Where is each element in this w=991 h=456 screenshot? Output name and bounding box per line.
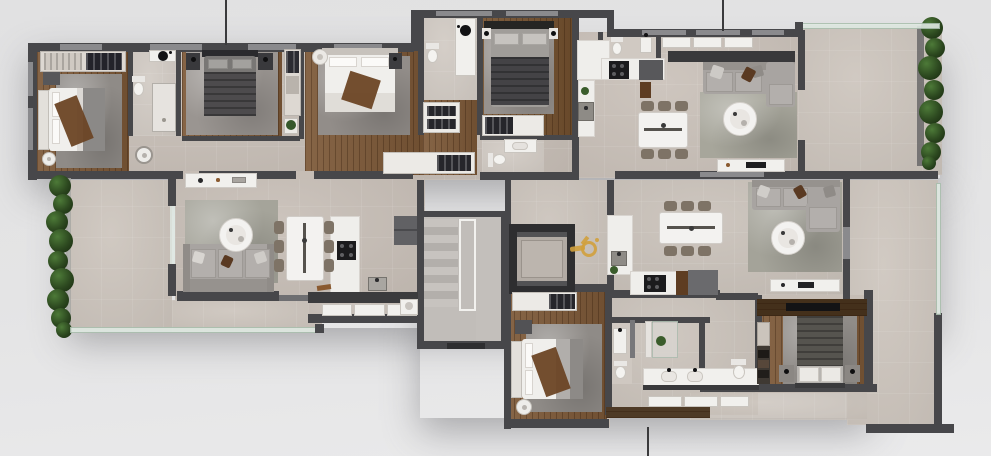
bed-bc-dresser xyxy=(515,320,532,334)
kitchen2-fridge xyxy=(688,270,718,295)
wall-bedroom-b-bottom xyxy=(182,136,300,141)
bath-c-bowl-sink xyxy=(460,25,471,36)
stair-tread xyxy=(424,227,458,235)
faucet xyxy=(457,25,460,28)
bed-bc-blanket-roll xyxy=(570,339,583,399)
bed-c-pillow xyxy=(329,57,357,67)
wardrobe-br-items xyxy=(758,360,769,368)
sofa-ml-back xyxy=(183,279,274,292)
bed-bc-pouf-button xyxy=(522,405,527,410)
leader-line-top-right xyxy=(722,0,724,31)
wall-mid-horizontal xyxy=(615,171,938,179)
stair-tread xyxy=(424,291,458,299)
stair-tread xyxy=(424,235,458,243)
bed-a-dresser xyxy=(43,72,60,85)
glass-railing-right xyxy=(936,183,941,315)
lamp xyxy=(784,369,789,374)
bed-br-pillow xyxy=(821,367,841,382)
stair-tread xyxy=(424,251,458,259)
dining-chair xyxy=(698,246,711,256)
bed-a-pouf-button xyxy=(47,157,51,161)
elevator-rail-top xyxy=(517,232,567,237)
bed-br-headrail xyxy=(795,383,845,388)
bath-d-toilet-bowl xyxy=(493,154,506,165)
bath-a-bowl-sink xyxy=(158,51,168,61)
closet-b-items-2 xyxy=(286,76,299,94)
bed-c-armchair-seat xyxy=(317,54,323,60)
wardrobe-a-clothes-light xyxy=(44,53,82,70)
hall-pouf-button xyxy=(142,153,147,158)
stair-tread xyxy=(424,259,458,267)
wall-stair-left xyxy=(417,180,424,348)
table-decor xyxy=(238,236,244,242)
leader-line-top-left xyxy=(225,0,227,45)
media-device xyxy=(798,282,814,288)
faucet xyxy=(618,328,622,332)
vanity-basin xyxy=(687,371,703,382)
dining-chair xyxy=(658,149,671,159)
kitchen1-drawer xyxy=(322,304,352,316)
wardrobe-br-items xyxy=(758,370,769,378)
stair-tread xyxy=(424,299,458,307)
faucet xyxy=(584,106,588,110)
lamp xyxy=(484,31,489,36)
shower-plant xyxy=(656,336,666,346)
bath-a-shower xyxy=(152,83,176,132)
dining-chair xyxy=(324,240,334,253)
console-ml xyxy=(185,173,257,188)
vanity-drawer xyxy=(684,396,718,407)
bath-a-toilet-bowl xyxy=(133,82,144,96)
wall-living-bottom-low xyxy=(279,295,309,301)
hedge-left xyxy=(50,268,74,292)
wall-divider-bath-b xyxy=(176,48,181,136)
vanity-basin xyxy=(661,371,677,382)
faucet xyxy=(375,278,379,282)
hedge-right xyxy=(924,80,944,100)
bed-br-blanket xyxy=(797,316,843,366)
wardrobe-a-clothes-dark xyxy=(86,53,122,70)
leader-line-bottom xyxy=(647,427,649,456)
wall-bath-left xyxy=(699,320,705,372)
console-decor xyxy=(781,283,785,287)
dining-chair xyxy=(324,259,334,272)
dining-chair xyxy=(675,101,688,111)
stair-tread xyxy=(424,219,458,227)
bed-c-headboard xyxy=(322,48,398,55)
shoe-row xyxy=(427,119,456,129)
bed-b-pillow xyxy=(208,59,228,69)
bed-d-blanket xyxy=(491,57,549,105)
window-mr-right xyxy=(843,227,850,259)
glass-cap xyxy=(315,324,324,333)
elevator-cab xyxy=(521,240,563,278)
hedge-right xyxy=(919,100,943,124)
glass-cap xyxy=(795,22,803,30)
bed-a-headboard xyxy=(38,90,49,150)
dining-chair xyxy=(664,201,677,211)
kitchen3-plant xyxy=(581,87,589,95)
floor-terrace-left xyxy=(70,180,172,331)
sofa-cushion xyxy=(809,207,837,229)
console-decor xyxy=(726,163,730,167)
nightstand xyxy=(389,53,402,69)
wall-divider-a-bath xyxy=(128,48,133,136)
vanity-drawer xyxy=(648,396,682,407)
sofa-cushion xyxy=(769,84,793,105)
wc-top-toilet-bowl xyxy=(612,42,622,55)
wall-terrace-divider-bottom xyxy=(798,140,805,178)
wall-living-bottom xyxy=(177,291,279,301)
kitchen3-wood-cabinet xyxy=(640,82,651,98)
glass-terrace-door xyxy=(170,206,175,264)
stair-tread xyxy=(424,243,458,251)
kitchen3-sink xyxy=(578,102,594,121)
glass-railing-top-right xyxy=(800,23,940,29)
dining-chair xyxy=(681,201,694,211)
window-left-2 xyxy=(28,108,33,150)
window-top-1 xyxy=(60,44,102,50)
kitchen1-fridge-handle xyxy=(394,229,417,231)
bar-counter xyxy=(668,51,795,62)
table-decor xyxy=(689,226,694,231)
wall-living-left-top xyxy=(168,178,176,206)
window-top-8 xyxy=(696,30,740,35)
nightstand xyxy=(258,53,273,70)
bed-br-pillow xyxy=(799,367,819,382)
hedge-right xyxy=(925,38,945,58)
bed-d-pillow xyxy=(494,33,519,45)
kitchen2-plant xyxy=(610,266,618,274)
dining-chair xyxy=(274,259,284,272)
dining-chair xyxy=(681,246,694,256)
dining-chair xyxy=(274,240,284,253)
dining-chair xyxy=(641,101,654,111)
stair-rail xyxy=(459,219,476,311)
window-top-9 xyxy=(752,30,784,35)
bed-b-blanket xyxy=(204,72,256,116)
faucet xyxy=(169,51,172,54)
lamp xyxy=(191,57,196,62)
faucet xyxy=(644,33,648,37)
dining-chair xyxy=(658,101,671,111)
kitchen1-drawer xyxy=(354,304,385,316)
lamp xyxy=(263,57,268,62)
vanity-drawer xyxy=(720,396,749,407)
glass-railing-left xyxy=(70,327,320,333)
kitchen2-wood-cabinet xyxy=(676,271,688,295)
shoe-row xyxy=(427,106,456,116)
table-runner xyxy=(303,223,306,273)
hedge-right xyxy=(925,123,945,143)
hedge-left xyxy=(49,229,73,253)
shoe-row xyxy=(549,294,575,309)
floor-plan-render xyxy=(0,0,991,456)
media-device xyxy=(746,162,766,168)
dining-chair xyxy=(675,149,688,159)
dining-chair xyxy=(641,149,654,159)
laundry-basin xyxy=(405,302,413,310)
table-decor xyxy=(789,239,795,245)
upper-cabinet xyxy=(724,37,753,48)
bed-bc-headboard xyxy=(511,341,522,398)
console-decor xyxy=(198,178,203,183)
wall-wc-right xyxy=(656,32,661,60)
kitchen3-dark-cabinet xyxy=(639,60,663,80)
table-decor xyxy=(741,120,747,126)
wall-bedroom-bc-bottom xyxy=(507,419,609,428)
wall-bath-bottom-wood xyxy=(606,407,710,418)
bath-a-drain xyxy=(162,118,166,122)
window-top-7 xyxy=(642,30,686,35)
dining-chair xyxy=(664,246,677,256)
stair-tread xyxy=(424,275,458,283)
dining-chair xyxy=(324,221,334,234)
stair-tread xyxy=(424,283,458,291)
bed-br-tv xyxy=(786,303,840,311)
vanity-edge xyxy=(643,385,759,390)
hedge-right xyxy=(918,56,942,80)
closet-b-items xyxy=(286,51,299,73)
shower-divider xyxy=(630,320,635,358)
wall-bath-d-bottom xyxy=(480,172,575,180)
elevator-rail-bottom xyxy=(517,281,567,286)
wall-step-right xyxy=(607,10,614,37)
wardrobe-br-items xyxy=(758,350,769,358)
table-runner xyxy=(644,128,682,131)
table-decor xyxy=(661,123,666,128)
wall-terrace-divider-top xyxy=(798,30,805,90)
bath-d-basin xyxy=(512,142,528,150)
wall-hall-br xyxy=(716,293,758,300)
bed-d-headboard xyxy=(484,21,554,29)
dining-chair xyxy=(698,201,711,211)
wc-top-sink xyxy=(640,37,652,53)
wall-right-lower xyxy=(934,313,942,427)
wall-step-left xyxy=(411,10,418,51)
wardrobe-br-top xyxy=(757,322,770,346)
stair-landing xyxy=(476,217,501,341)
shoe-row xyxy=(437,155,471,171)
lamp xyxy=(551,31,556,36)
nightstand xyxy=(845,365,860,382)
stair-tread xyxy=(424,267,458,275)
wc-bottom-toilet-bowl xyxy=(615,366,626,379)
wall-living-left-bottom xyxy=(168,264,176,296)
window-mid-1 xyxy=(700,172,764,177)
plant-b xyxy=(286,120,296,130)
window-left-1 xyxy=(28,62,33,96)
bath-br-toilet-bowl xyxy=(733,365,745,379)
bath-shelf xyxy=(645,321,652,358)
window-top-6 xyxy=(506,11,558,16)
dining-chair xyxy=(274,221,284,234)
console-tray xyxy=(232,177,246,183)
hedge-right xyxy=(922,156,936,170)
window-top-5 xyxy=(436,11,492,16)
bed-c-pillow xyxy=(361,57,389,67)
nightstand xyxy=(186,53,200,70)
nightstand xyxy=(779,365,794,382)
faucet xyxy=(617,252,621,256)
wall-bedroom-bc-right xyxy=(605,287,612,415)
bed-b-pillow xyxy=(232,59,252,69)
bed-bc-pillow xyxy=(525,370,533,395)
bath-c-toilet-bowl xyxy=(427,49,438,63)
bed-d-pillow xyxy=(522,33,547,45)
bed-a-pillow xyxy=(52,119,60,144)
shoe-row xyxy=(485,117,513,134)
lamp xyxy=(850,369,855,374)
upper-cabinet xyxy=(693,37,722,48)
stair-door-recess xyxy=(447,343,485,349)
wall-bottom-right xyxy=(866,424,954,433)
sofa-arm xyxy=(183,244,190,292)
upper-cabinet xyxy=(662,37,691,48)
door-gap-hall-2 xyxy=(296,171,314,179)
wall-bedroom-bc-left xyxy=(504,284,511,429)
table-decor xyxy=(302,238,307,243)
console-decor xyxy=(216,178,220,182)
